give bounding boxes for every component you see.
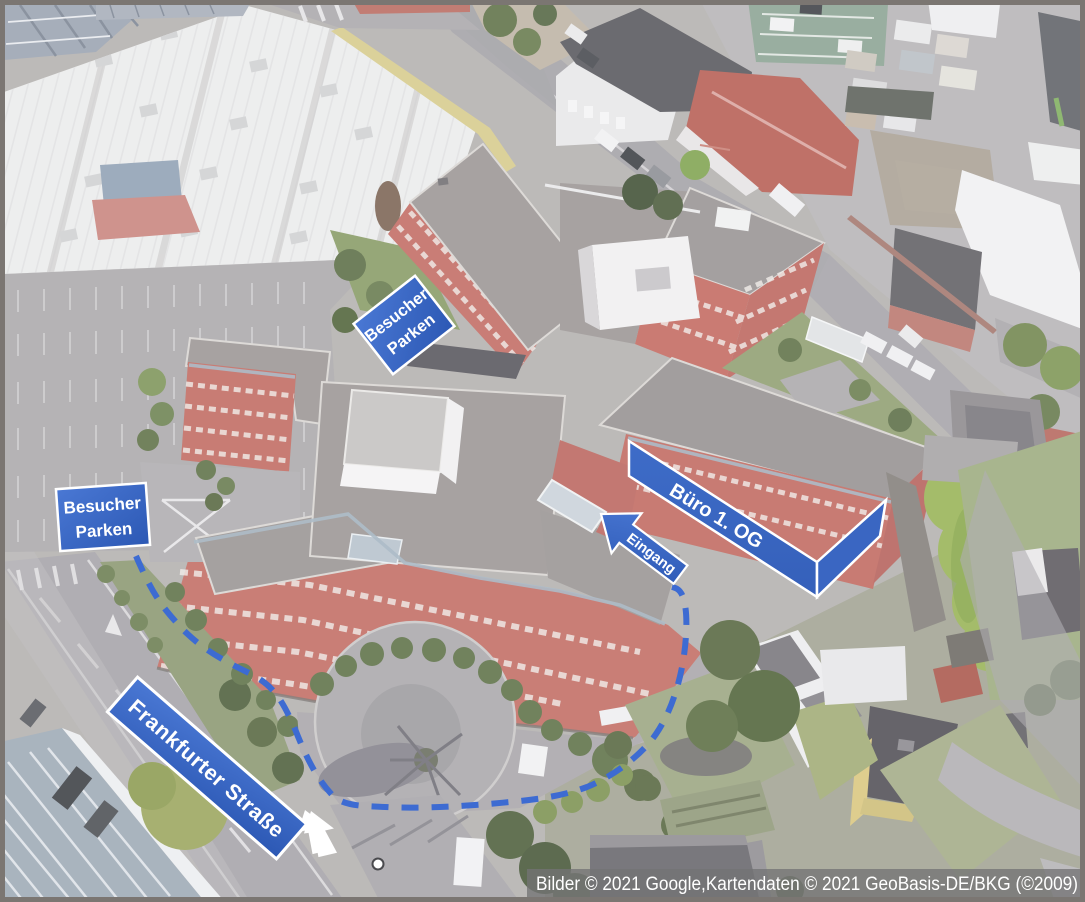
svg-text:Parken: Parken bbox=[75, 519, 133, 542]
svg-text:Bilder © 2021 Google,Kartendat: Bilder © 2021 Google,Kartendaten © 2021 … bbox=[536, 874, 1078, 895]
